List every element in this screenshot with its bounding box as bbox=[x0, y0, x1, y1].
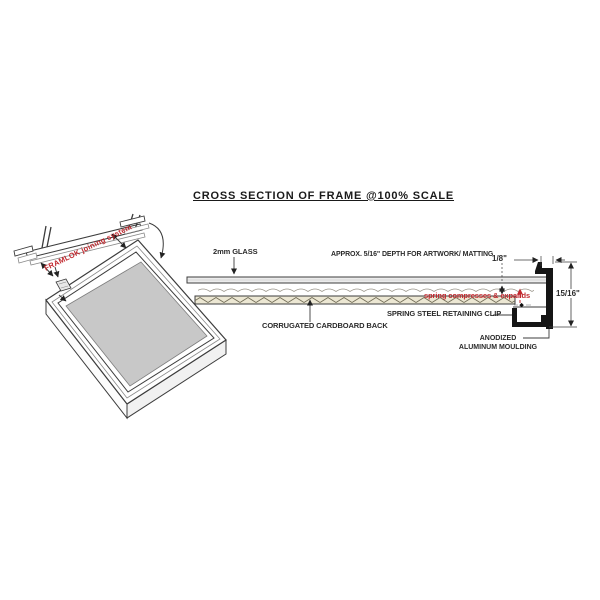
moulding-label-line2: ALUMINUM MOULDING bbox=[452, 344, 544, 353]
spring-note-label: spring compresses & expands bbox=[424, 291, 530, 300]
diagram-canvas bbox=[0, 0, 600, 600]
spring-clip-profile bbox=[512, 308, 546, 327]
frame-cross-section-diagram: CROSS SECTION OF FRAME @100% SCALE 2mm G… bbox=[0, 0, 600, 600]
moulding-label-line1: ANODIZED bbox=[452, 335, 544, 344]
moulding-label: ANODIZED ALUMINUM MOULDING bbox=[452, 335, 544, 352]
glass-label: 2mm GLASS bbox=[213, 247, 258, 256]
diagram-title: CROSS SECTION OF FRAME @100% SCALE bbox=[193, 190, 447, 202]
lip-width-dimension-label: 1/8" bbox=[492, 254, 507, 263]
spring-clip-label: SPRING STEEL RETAINING CLIP bbox=[387, 309, 501, 318]
artwork-depth-label: APPROX. 5/16" DEPTH FOR ARTWORK/ MATTING bbox=[331, 251, 493, 258]
small-arrow-corner bbox=[55, 267, 58, 277]
cardboard-back-label: CORRUGATED CARDBOARD BACK bbox=[262, 321, 388, 330]
perspective-frame bbox=[14, 214, 226, 418]
moulding-height-dimension-label: 15/16" bbox=[555, 289, 581, 298]
curved-arrow bbox=[149, 223, 163, 258]
